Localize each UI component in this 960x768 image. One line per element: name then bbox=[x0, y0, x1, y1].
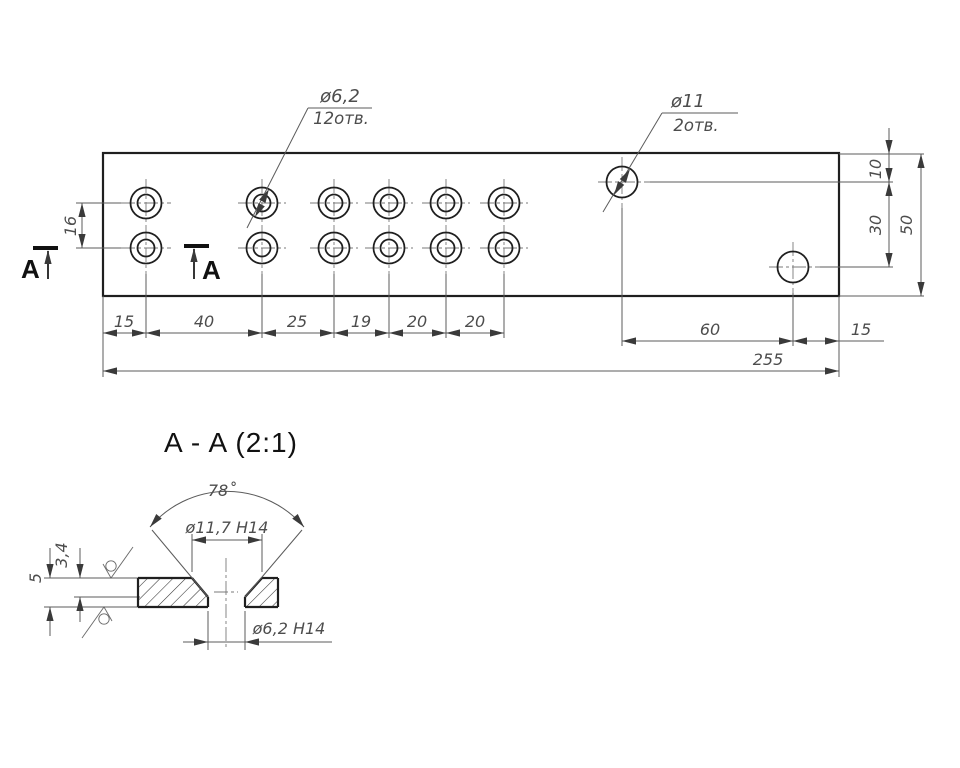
dim-15-right-text: 15 bbox=[851, 320, 871, 339]
dim-right-side: 10 30 50 bbox=[839, 128, 925, 296]
dim-chain-2: 25 bbox=[287, 312, 307, 331]
roughness-symbol-top bbox=[103, 547, 133, 578]
dim-10-text: 10 bbox=[866, 159, 885, 179]
dim-row-spacing: 16 bbox=[61, 203, 86, 248]
section-label-right: A bbox=[202, 255, 221, 285]
dim-csk-dia: ø11,7 H14 bbox=[185, 518, 269, 572]
callout-small-hole: ø6,2 12отв. bbox=[247, 86, 372, 228]
small-hole-dia-label: ø6,2 bbox=[319, 86, 360, 107]
section-view: A - A (2:1) bbox=[26, 427, 332, 650]
roughness-symbol-bottom bbox=[82, 607, 112, 638]
small-holes bbox=[131, 188, 520, 264]
dim-overall-length: 255 bbox=[103, 350, 839, 375]
small-hole-count-label: 12отв. bbox=[313, 109, 369, 128]
large-holes bbox=[607, 167, 809, 283]
dim-hole-dia-text: ø6,2 H14 bbox=[252, 619, 326, 638]
dim-thickness: 3,4 5 bbox=[26, 542, 84, 636]
dim-chain-5: 20 bbox=[465, 312, 485, 331]
dim-chain-4: 20 bbox=[407, 312, 427, 331]
dim-16-text: 16 bbox=[61, 216, 80, 236]
section-cut-marks: A A bbox=[21, 246, 221, 285]
technical-drawing: ø6,2 12отв. ø11 2отв. A A bbox=[0, 0, 960, 768]
main-view: ø6,2 12отв. ø11 2отв. A A bbox=[21, 86, 925, 377]
section-label-left: A bbox=[21, 254, 40, 284]
dim-chain-0: 15 bbox=[114, 312, 134, 331]
dim-60-text: 60 bbox=[700, 320, 720, 339]
dim-chain-1: 40 bbox=[194, 312, 214, 331]
dim-thickness-text: 5 bbox=[26, 573, 45, 583]
dim-30-text: 30 bbox=[866, 215, 885, 235]
dim-255-text: 255 bbox=[753, 350, 784, 369]
dim-csk-dia-text: ø11,7 H14 bbox=[185, 518, 269, 537]
dim-50-text: 50 bbox=[897, 215, 916, 235]
dim-hole-dia: ø6,2 H14 bbox=[183, 611, 332, 650]
dim-chain-bottom: 15 40 25 19 20 20 bbox=[103, 296, 839, 377]
dim-csk-depth-text: 3,4 bbox=[52, 542, 71, 567]
dim-60-15: 60 15 bbox=[622, 320, 884, 345]
large-hole-count-label: 2отв. bbox=[673, 116, 718, 135]
large-hole-dia-label: ø11 bbox=[670, 91, 705, 112]
dim-chain-3: 19 bbox=[351, 312, 371, 331]
hatch-left bbox=[138, 578, 208, 607]
drawing-sheet: ø6,2 12отв. ø11 2отв. A A bbox=[0, 0, 960, 768]
dim-78-text: 78˚ bbox=[208, 481, 236, 500]
section-title: A - A (2:1) bbox=[164, 427, 298, 458]
callout-large-hole: ø11 2отв. bbox=[603, 91, 738, 212]
